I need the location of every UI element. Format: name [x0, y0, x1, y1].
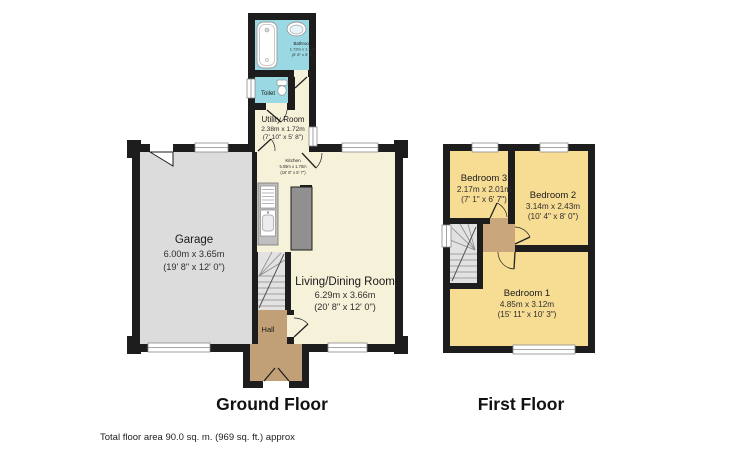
room-name: Hall — [262, 325, 275, 334]
room-dim-imperial: (19' 8" x 12' 0") — [163, 262, 225, 272]
room-dim-imperial: (20' 8" x 12' 0") — [314, 302, 376, 312]
room-dim-metric: 2.17m x 2.01m — [457, 185, 511, 194]
room-name: Garage — [175, 234, 213, 246]
room-name: Kitchen — [285, 158, 301, 163]
toilet-door-gap — [266, 103, 287, 110]
room-dim-imperial: (15' 11" x 10' 3") — [498, 310, 557, 319]
bathroom-door-gap — [294, 70, 308, 77]
room-label-utility: Utility Room 2.38m x 1.72m (7' 10" x 5' … — [261, 115, 305, 141]
floorplan-canvas: Bathroom 1.72m x 1.73m (5' 8" x 5' 8") T… — [0, 0, 750, 458]
room-dim-metric: 5.09m x 1.70m — [279, 164, 307, 169]
room-name: Bedroom 2 — [530, 190, 576, 201]
first-floor-title: First Floor — [478, 394, 565, 414]
room-label-bedroom3: Bedroom 3 2.17m x 2.01m (7' 1" x 6' 7") — [457, 173, 511, 204]
ground-floor-plan: Bathroom 1.72m x 1.73m (5' 8" x 5' 8") T… — [127, 13, 408, 414]
bedroom3-door-gap — [490, 218, 508, 224]
room-dim-metric: 1.72m x 1.73m — [290, 47, 317, 52]
room-name: Toilet — [261, 91, 275, 97]
toilet-icon — [277, 80, 287, 95]
hall-living-door-gap — [287, 315, 294, 337]
room-dim-imperial: (5' 8" x 5' 8") — [292, 52, 315, 57]
room-dim-metric: 4.85m x 3.12m — [500, 300, 554, 309]
room-name: Utility Room — [261, 115, 304, 124]
room-garage-floor — [140, 152, 252, 344]
room-dim-metric: 3.14m x 2.43m — [526, 202, 580, 211]
room-dim-metric: 6.00m x 3.65m — [164, 249, 225, 259]
room-dim-imperial: (16' 8" x 5' 7") — [280, 170, 306, 175]
room-name: Bedroom 3 — [461, 173, 507, 184]
room-name: Bathroom — [293, 41, 312, 46]
room-dim-imperial: (7' 10" x 5' 8") — [263, 134, 304, 141]
room-label-bedroom1: Bedroom 1 4.85m x 3.12m (15' 11" x 10' 3… — [498, 288, 557, 319]
bedroom2-door-gap — [508, 227, 515, 244]
basin-icon — [287, 22, 306, 36]
total-area-note: Total floor area 90.0 sq. m. (969 sq. ft… — [100, 432, 295, 443]
room-dim-imperial: (7' 1" x 6' 7") — [461, 195, 507, 204]
room-label-bedroom2: Bedroom 2 3.14m x 2.43m (10' 4" x 8' 0") — [526, 190, 580, 221]
room-name: Living/Dining Room — [295, 276, 395, 288]
bathtub-icon — [257, 22, 277, 68]
room-dim-metric: 6.29m x 3.66m — [315, 290, 376, 300]
room-dim-metric: 2.38m x 1.72m — [261, 126, 305, 133]
room-label-toilet: Toilet — [261, 91, 275, 97]
room-label-hall: Hall — [262, 325, 275, 334]
ground-floor-title: Ground Floor — [216, 394, 328, 414]
first-floor-plan: Bedroom 3 2.17m x 2.01m (7' 1" x 6' 7") … — [442, 143, 595, 414]
stairs-icon-first — [450, 224, 477, 283]
chimney-breast — [291, 187, 312, 250]
stairs-icon-ground — [258, 252, 285, 310]
kitchen-counter-icon — [258, 183, 278, 245]
room-name: Bedroom 1 — [504, 288, 550, 299]
room-dim-imperial: (10' 4" x 8' 0") — [528, 212, 579, 221]
floorplan-page: Bathroom 1.72m x 1.73m (5' 8" x 5' 8") T… — [0, 0, 750, 458]
